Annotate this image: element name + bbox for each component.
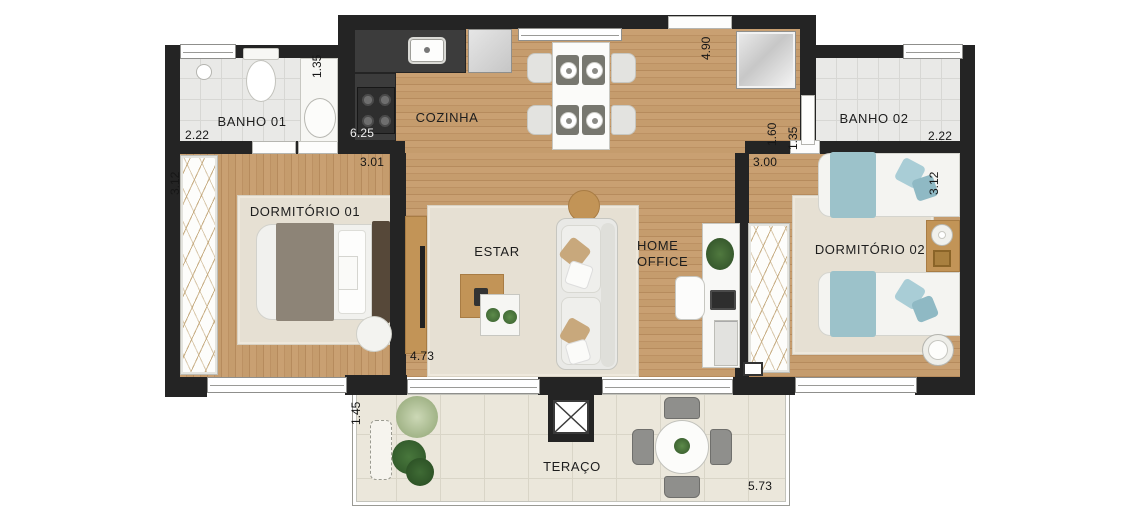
- placemat: [556, 105, 579, 135]
- dining-chair: [611, 105, 636, 135]
- wall-banho01-kitchen: [338, 15, 354, 141]
- lamp-icon: [931, 224, 953, 246]
- terrace-slider-left: [407, 379, 540, 394]
- dim-banho02-width: 2.22: [928, 129, 952, 143]
- kitchen-window: [518, 28, 622, 41]
- table-plant-icon: [674, 438, 690, 454]
- wall-bottom-left-corner: [165, 377, 207, 397]
- double-bed: [256, 224, 390, 320]
- plant-icon: [486, 308, 500, 322]
- dim-banho01-width: 2.22: [185, 128, 209, 142]
- kitchen-sink-drain: [424, 47, 430, 53]
- dim-terrace-depth: 1.45: [349, 385, 363, 425]
- wall-left-outer: [165, 45, 180, 393]
- terrace-tree-icon: [396, 396, 438, 438]
- office-chair: [675, 276, 705, 320]
- plant-icon: [503, 310, 517, 324]
- wall-bottom-right-corner: [915, 377, 975, 395]
- floor-plan: BANHO 01 COZINHA BANHO 02 DORMITÓRIO 01 …: [0, 0, 1138, 530]
- room-label-home-office: HOME OFFICE: [637, 238, 697, 270]
- room-label-estar: ESTAR: [474, 244, 519, 259]
- dim-kitchen-counter: 6.25: [350, 126, 374, 140]
- dim-dorm02-top: 3.00: [753, 155, 777, 169]
- desk-plant-icon: [706, 238, 734, 270]
- terrace-bush-icon: [406, 458, 434, 486]
- banho01-window: [180, 44, 236, 59]
- single-bed: [818, 272, 960, 336]
- dorm02-bottom-window: [795, 377, 917, 393]
- dorm01-closet: [181, 156, 217, 374]
- laptop-icon: [710, 290, 736, 310]
- dim-estar-width: 4.73: [410, 349, 434, 363]
- dorm01-door: [298, 141, 338, 154]
- dim-dorm01-closet: 3.12: [168, 155, 182, 195]
- banho02-window: [903, 44, 963, 59]
- room-label-dormitorio02: DORMITÓRIO 02: [815, 242, 925, 257]
- placemat: [556, 55, 579, 85]
- banho02-door: [801, 95, 815, 145]
- dim-banho02-left: 1.35: [786, 110, 800, 150]
- dining-chair: [611, 53, 636, 83]
- dim-terrace-width: 5.73: [748, 479, 772, 493]
- toilet-icon: [243, 48, 279, 104]
- room-label-banho02: BANHO 02: [839, 111, 908, 126]
- wall-dorm01-estar: [390, 153, 406, 381]
- wall-top-center: [338, 15, 816, 29]
- banho01-door: [252, 141, 296, 154]
- tv-icon: [420, 246, 425, 328]
- bed-blanket-blue: [830, 152, 876, 218]
- photo-frame-icon: [933, 250, 951, 267]
- shaft-box: [743, 362, 763, 376]
- bed-blanket-blue: [830, 271, 876, 337]
- room-label-teraco: TERAÇO: [543, 459, 601, 474]
- room-label-banho01: BANHO 01: [217, 114, 286, 129]
- sofa: [556, 218, 618, 370]
- dim-dorm01-top: 3.01: [360, 155, 384, 169]
- dim-entry-depth: 4.90: [699, 20, 713, 60]
- terrace-chair: [664, 397, 700, 419]
- bed-tray: [338, 256, 358, 290]
- dim-hall-right: 1.60: [765, 106, 779, 146]
- banho01-sink-icon: [304, 98, 336, 138]
- shaft-x-box: [553, 400, 589, 434]
- shower-head-icon: [196, 64, 212, 80]
- dim-dorm02-right: 3.12: [927, 155, 941, 195]
- terrace-chair: [710, 429, 732, 465]
- round-tray: [922, 334, 954, 366]
- dorm01-bottom-window: [207, 377, 347, 393]
- dining-chair: [527, 53, 552, 83]
- terrace-chair: [632, 429, 654, 465]
- terrace-slider-right: [602, 379, 733, 394]
- room-label-cozinha: COZINHA: [416, 110, 479, 125]
- placemat: [582, 55, 605, 85]
- pouf: [356, 316, 392, 352]
- wall-bottom-stub-right: [733, 377, 795, 395]
- bed-headboard: [372, 221, 390, 323]
- terrace-chair: [664, 476, 700, 498]
- desk-drawers: [714, 320, 738, 366]
- dining-chair: [527, 105, 552, 135]
- fridge-icon: [468, 29, 512, 73]
- wall-right-outer: [960, 45, 975, 393]
- bed-blanket: [276, 223, 334, 321]
- terrace-bench: [370, 420, 392, 480]
- shower-box: [737, 32, 795, 88]
- dim-banho01-right: 1.35: [310, 38, 324, 78]
- room-label-dormitorio01: DORMITÓRIO 01: [250, 204, 360, 219]
- placemat: [582, 105, 605, 135]
- dorm02-closet: [749, 224, 789, 372]
